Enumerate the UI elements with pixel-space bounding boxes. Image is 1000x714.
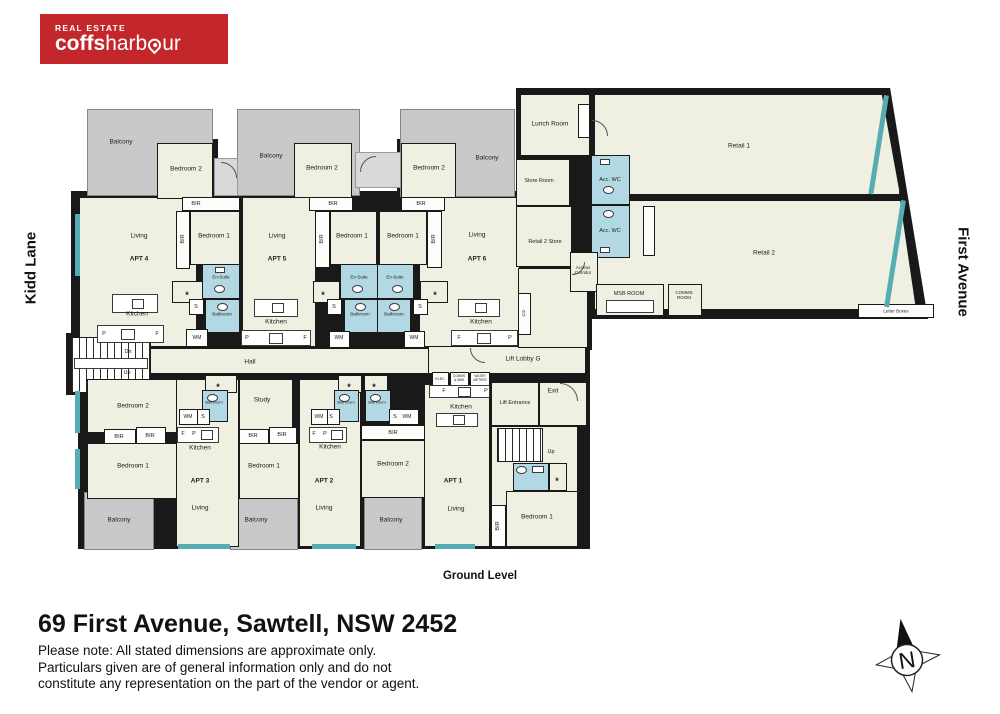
plan-label--: * <box>555 476 559 486</box>
plan-label-p: P <box>484 388 488 394</box>
plan-label-bathroom: Bathroom <box>212 312 232 317</box>
window-left-3 <box>75 449 80 489</box>
plan-label-balcony: Balcony <box>379 517 402 524</box>
plan-label-apt-2: APT 2 <box>315 478 333 485</box>
toilet-apt1 <box>516 466 527 474</box>
plan-label-f: F <box>155 331 158 337</box>
plan-label--: * <box>389 336 393 346</box>
plan-label-en-suite: En-Suite <box>386 275 403 280</box>
plan-label-elec: ELEC <box>435 377 444 381</box>
property-address: 69 First Avenue, Sawtell, NSW 2452 <box>38 610 457 639</box>
plan-label-bathroom: Bathroom <box>350 312 370 317</box>
plan-label-bir: BIR <box>319 234 325 243</box>
plan-label-balcony: Balcony <box>244 517 267 524</box>
window-bottom-2 <box>312 544 356 549</box>
plan-label-bir: BIR <box>328 201 337 207</box>
plan-label-lunch-room: Lunch Room <box>532 121 569 128</box>
plan-label--: * <box>347 382 351 392</box>
plan-label-bir: BIR <box>145 433 154 439</box>
plan-label-bedroom-1: Bedroom 1 <box>521 514 553 521</box>
plan-label-bir: BIR <box>277 432 286 438</box>
plan-label-p: P <box>323 431 327 437</box>
plan-label-retail-2-store: Retail 2 Store <box>528 239 561 245</box>
plan-label-p: P <box>245 335 249 341</box>
plan-label-acc-wc: Acc. WC <box>599 177 620 183</box>
apt3-bedroom1 <box>87 443 177 499</box>
north-compass-icon: N <box>872 612 942 704</box>
plan-label--: * <box>433 290 437 300</box>
disclaimer-line-2: Particulars given are of general informa… <box>38 660 419 677</box>
plan-label-bedroom-1: Bedroom 1 <box>117 463 149 470</box>
plan-label-living: Living <box>131 233 148 240</box>
plan-label-wm: WM <box>410 335 419 341</box>
plan-label-bedroom-2: Bedroom 2 <box>306 165 338 172</box>
plan-label-living: Living <box>316 505 333 512</box>
plan-label-bir: BIR <box>114 434 123 440</box>
basin-wc2 <box>600 247 610 253</box>
plan-label-msb-room: MSB ROOM <box>614 291 645 297</box>
plan-label-living: Living <box>269 233 286 240</box>
door-arc-balcony-2 <box>360 156 376 172</box>
apt6-ensuite <box>377 264 414 299</box>
floor-plan: BalconyBedroom 2BalconyBedroom 2Bedroom … <box>0 0 1000 714</box>
apt1-stove <box>458 387 471 397</box>
window-left-1 <box>75 214 80 276</box>
apt4-stove <box>121 329 135 340</box>
plan-label-wm: WM <box>193 335 202 341</box>
disclaimer: Please note: All stated dimensions are a… <box>38 643 419 693</box>
plan-label-bir: BIR <box>388 430 397 436</box>
plan-label-f-p: F/P <box>522 309 527 316</box>
apt1-island-sink <box>453 415 465 425</box>
apt6-island-sink <box>475 303 487 313</box>
plan-label-en-suite: En-Suite <box>212 275 229 280</box>
plan-label-bathroom: Bathroom <box>368 400 385 405</box>
apt5-island-sink <box>272 303 284 313</box>
disclaimer-line-1: Please note: All stated dimensions are a… <box>38 643 419 660</box>
plan-label-balcony: Balcony <box>259 153 282 160</box>
plan-label-f: F <box>312 431 315 437</box>
apt5-stove <box>269 333 283 344</box>
plan-label-bedroom-2: Bedroom 2 <box>413 165 445 172</box>
plan-label-kitchen: Kitchen <box>450 404 472 411</box>
basin-apt4 <box>215 267 225 273</box>
basin-wc1 <box>600 159 610 165</box>
plan-label-bedroom-2: Bedroom 2 <box>117 403 149 410</box>
plan-label-living: Living <box>469 232 486 239</box>
stairs-upper-landing <box>74 358 148 369</box>
plan-label--: * <box>372 382 376 392</box>
plan-label-store-room: Store Room <box>524 178 553 184</box>
plan-label-retail-1: Retail 1 <box>728 143 750 150</box>
plan-label-bedroom-2: Bedroom 2 <box>377 461 409 468</box>
plan-label-apt-3: APT 3 <box>191 478 209 485</box>
plan-label-kitchen: Kitchen <box>319 444 341 451</box>
toilet-apt6-ensuite <box>392 285 403 293</box>
plan-label-s: S <box>332 304 336 310</box>
plan-label-wm: WM <box>403 414 412 420</box>
plan-label-p: P <box>508 335 512 341</box>
plan-label-dn: Dn <box>124 349 131 355</box>
disclaimer-line-3: constitute any representation on the par… <box>38 676 419 693</box>
plan-label-bedroom-1: Bedroom 1 <box>198 233 230 240</box>
plan-label-bedroom-1: Bedroom 1 <box>387 233 419 240</box>
plan-label-p: P <box>102 331 106 337</box>
level-caption: Ground Level <box>443 570 517 582</box>
plan-label-f: F <box>442 388 445 394</box>
toilet-wc2 <box>603 210 614 218</box>
plan-label-exit: Exit <box>548 388 559 395</box>
plan-label-bathroom: Bathroom <box>205 400 222 405</box>
comms-room <box>668 284 702 316</box>
plan-label-apt-5: APT 5 <box>268 256 286 263</box>
plan-label-bir: BIR <box>431 234 437 243</box>
plan-label-acc-wc: Acc. WC <box>599 228 620 234</box>
plan-label-bir: BIR <box>416 201 425 207</box>
apt4-island-sink <box>132 299 144 309</box>
plan-label-wm: WM <box>184 414 193 420</box>
basin-apt1 <box>532 466 544 473</box>
plan-label-s: S <box>194 304 198 310</box>
plan-label-lift-lobby-g: Lift Lobby G <box>505 356 540 363</box>
apt2-bedroom1 <box>239 443 299 499</box>
plan-label-kitchen: Kitchen <box>126 311 148 318</box>
plan-label-p: P <box>192 431 196 437</box>
window-bottom-3 <box>435 544 475 549</box>
plan-label-balcony: Balcony <box>475 155 498 162</box>
window-bottom-1 <box>178 544 230 549</box>
plan-label-f: F <box>457 335 460 341</box>
plan-label-f: F <box>181 431 184 437</box>
plan-label-bir: BIR <box>248 433 257 439</box>
plan-label-bir: BIR <box>180 234 186 243</box>
toilet-apt4-ensuite <box>214 285 225 293</box>
plan-label-bir: BIR <box>191 201 200 207</box>
plan-label-access-corridor: Access Corridor <box>575 265 591 275</box>
plan-label-bathroom: Bathroom <box>337 400 354 405</box>
door-arc-lunch <box>592 120 608 136</box>
plan-label-bedroom-2: Bedroom 2 <box>170 166 202 173</box>
plan-label--: * <box>216 382 220 392</box>
plan-label-bir: BIR <box>495 521 501 530</box>
plan-label-apt-1: APT 1 <box>444 478 462 485</box>
apt2-stove <box>331 430 343 440</box>
plan-label-bedroom-1: Bedroom 1 <box>248 463 280 470</box>
door-arc-exit <box>560 383 578 401</box>
door-arc-lobby <box>470 348 485 363</box>
plan-label-letter-boxes: Letter Boxes <box>883 309 908 314</box>
plan-label-retail-2: Retail 2 <box>753 250 775 257</box>
plan-label--: * <box>219 336 223 346</box>
toilet-apt4-bath <box>217 303 228 311</box>
toilet-apt5-bath <box>355 303 366 311</box>
plan-label-bedroom-1: Bedroom 1 <box>336 233 368 240</box>
plan-label--: * <box>185 290 189 300</box>
plan-label-f: F <box>303 335 306 341</box>
plan-label-comms-room: COMMS ROOM <box>675 290 692 300</box>
plan-label-wm: WM <box>315 414 324 420</box>
plan-label-up: Up <box>123 370 130 376</box>
plan-label-kitchen: Kitchen <box>189 445 211 452</box>
toilet-apt5-ensuite <box>352 285 363 293</box>
wc-divider <box>643 206 655 256</box>
plan-label-balcony: Balcony <box>107 517 130 524</box>
toilet-apt6-bath <box>389 303 400 311</box>
plan-label-living: Living <box>448 506 465 513</box>
plan-label-kitchen: Kitchen <box>470 319 492 326</box>
apt1-bedroom2 <box>361 440 425 498</box>
plan-label-lift-entrance: Lift Entrance <box>500 400 531 406</box>
window-left-2 <box>75 391 80 433</box>
plan-label-water-meters: WATER METERS <box>473 374 486 382</box>
plan-label-s: S <box>393 414 397 420</box>
plan-label--: * <box>361 336 365 346</box>
plan-label-wm: WM <box>335 335 344 341</box>
plan-label-living: Living <box>192 505 209 512</box>
plan-label-en-suite: En-Suite <box>350 275 367 280</box>
apt2-study <box>239 379 293 431</box>
plan-label-study: Study <box>254 397 271 404</box>
plan-label-s: S <box>201 414 205 420</box>
plan-label-balcony: Balcony <box>109 139 132 146</box>
apt5-ensuite <box>340 264 378 299</box>
plan-label--: * <box>321 290 325 300</box>
door-arc-balcony-1 <box>221 162 237 178</box>
plan-label-s: S <box>329 414 333 420</box>
plan-label-hall: Hall <box>244 359 255 366</box>
plan-label-up: Up <box>547 449 554 455</box>
plan-label-kitchen: Kitchen <box>265 319 287 326</box>
retail2-store <box>516 206 572 267</box>
plan-label-apt-6: APT 6 <box>468 256 486 263</box>
plan-label-comms-nbn: COMMS & NBN <box>453 374 465 382</box>
plan-label-bathroom: Bathroom <box>384 312 404 317</box>
plan-label-apt-4: APT 4 <box>130 256 148 263</box>
apt3-stove <box>201 430 213 440</box>
stairs-lower <box>497 428 543 462</box>
plan-label-s: S <box>418 304 422 310</box>
msb-fixture <box>606 300 654 313</box>
toilet-wc1 <box>603 186 614 194</box>
lunch-fixture <box>578 104 590 138</box>
apt6-stove <box>477 333 491 344</box>
